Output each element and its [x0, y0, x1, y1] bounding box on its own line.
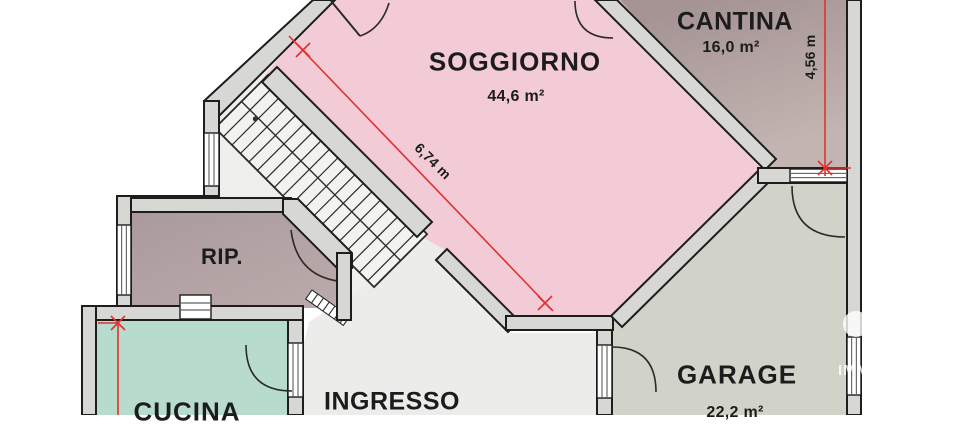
dimension-label-cantina: 4,56 m	[802, 35, 818, 80]
room-label-soggiorno: SOGGIORNO	[429, 47, 601, 78]
window-rip-cucina	[180, 295, 211, 319]
watermark-logo	[843, 311, 869, 337]
room-area-soggiorno: 44,6 m²	[487, 88, 544, 106]
window-left-upper	[204, 133, 219, 186]
room-area-cantina: 16,0 m²	[702, 39, 759, 57]
window-rip-left	[117, 225, 131, 295]
watermark-text: IMM	[838, 362, 870, 379]
room-label-ingresso: INGRESSO	[324, 388, 460, 417]
floor-plan: SOGGIORNO 44,6 m² CANTINA 16,0 m² RIP. C…	[0, 0, 960, 415]
room-label-garage: GARAGE	[677, 360, 797, 391]
door-threshold-ingresso-garage	[597, 345, 612, 398]
room-area-garage: 22,2 m²	[706, 404, 763, 422]
wall-outer-left-lower	[82, 306, 96, 415]
room-label-cantina: CANTINA	[677, 8, 793, 37]
door-threshold-cucina	[288, 343, 303, 397]
wall-rip-right	[337, 253, 351, 320]
room-label-cucina: CUCINA	[133, 397, 240, 428]
room-label-rip: RIP.	[201, 244, 243, 270]
wall-rip-top	[131, 198, 291, 212]
wall-soggiorno-bottom	[506, 316, 613, 330]
